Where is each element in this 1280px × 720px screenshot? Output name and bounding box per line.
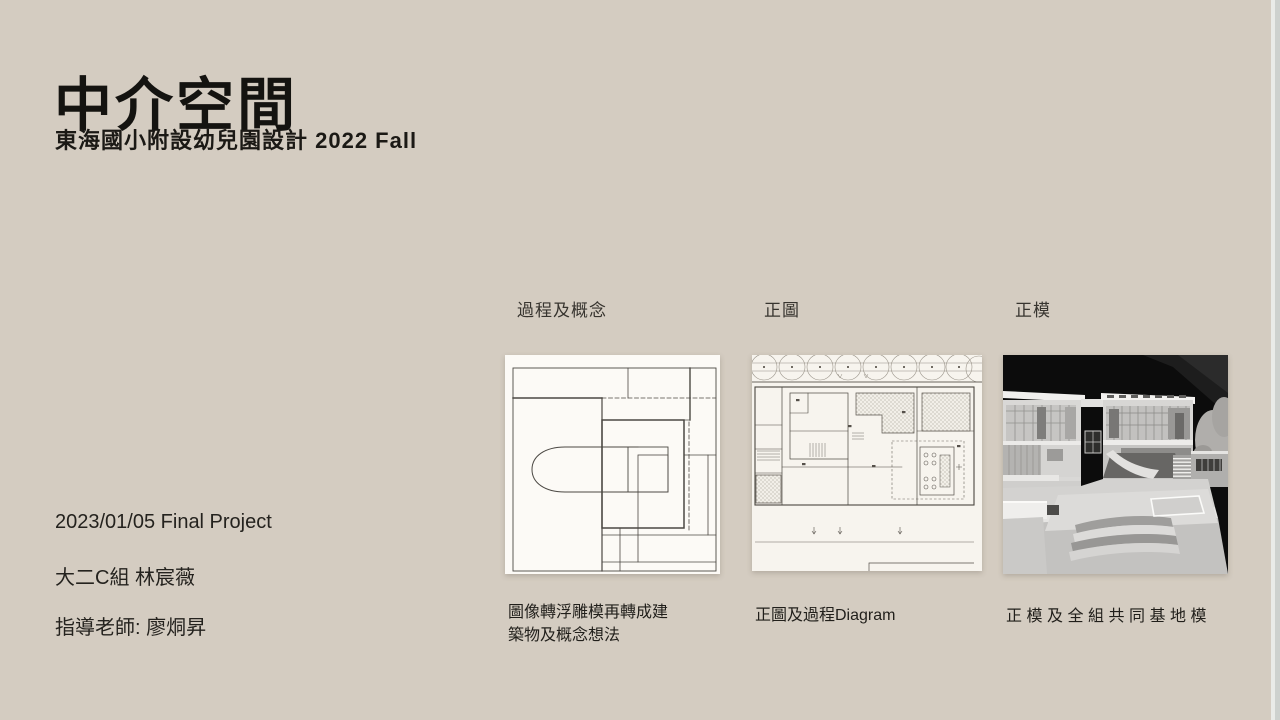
model-photo-rendering <box>1003 355 1228 574</box>
slide-right-edge <box>1271 0 1280 720</box>
column-final-drawing: 正圖 <box>752 300 982 627</box>
column-heading: 正圖 <box>752 300 982 322</box>
slide-subtitle: 東海國小附設幼兒園設計 2022 Fall <box>55 123 417 155</box>
site-plan-drawing <box>752 355 982 571</box>
column-heading: 正模 <box>1003 300 1228 322</box>
model-photo-image <box>1003 355 1228 574</box>
column-caption: 正模及全組共同基地模 <box>1003 605 1231 628</box>
presentation-slide: 中介空間 東海國小附設幼兒園設計 2022 Fall 2023/01/05 Fi… <box>0 0 1280 720</box>
advisor-line: 指導老師: 廖烔昇 <box>55 611 206 640</box>
site-plan-image <box>752 355 982 571</box>
concept-sketch-drawing <box>505 355 720 574</box>
column-caption: 圖像轉浮雕模再轉成建築物及概念想法 <box>505 601 680 647</box>
column-caption: 正圖及過程Diagram <box>752 604 975 627</box>
team-author-line: 大二C組 林宸薇 <box>55 561 195 590</box>
column-heading: 過程及概念 <box>505 300 720 322</box>
column-process-concept: 過程及概念 <box>505 300 720 647</box>
column-final-model: 正模 <box>1003 300 1228 628</box>
project-date-line: 2023/01/05 Final Project <box>55 511 272 534</box>
concept-sketch-image <box>505 355 720 574</box>
